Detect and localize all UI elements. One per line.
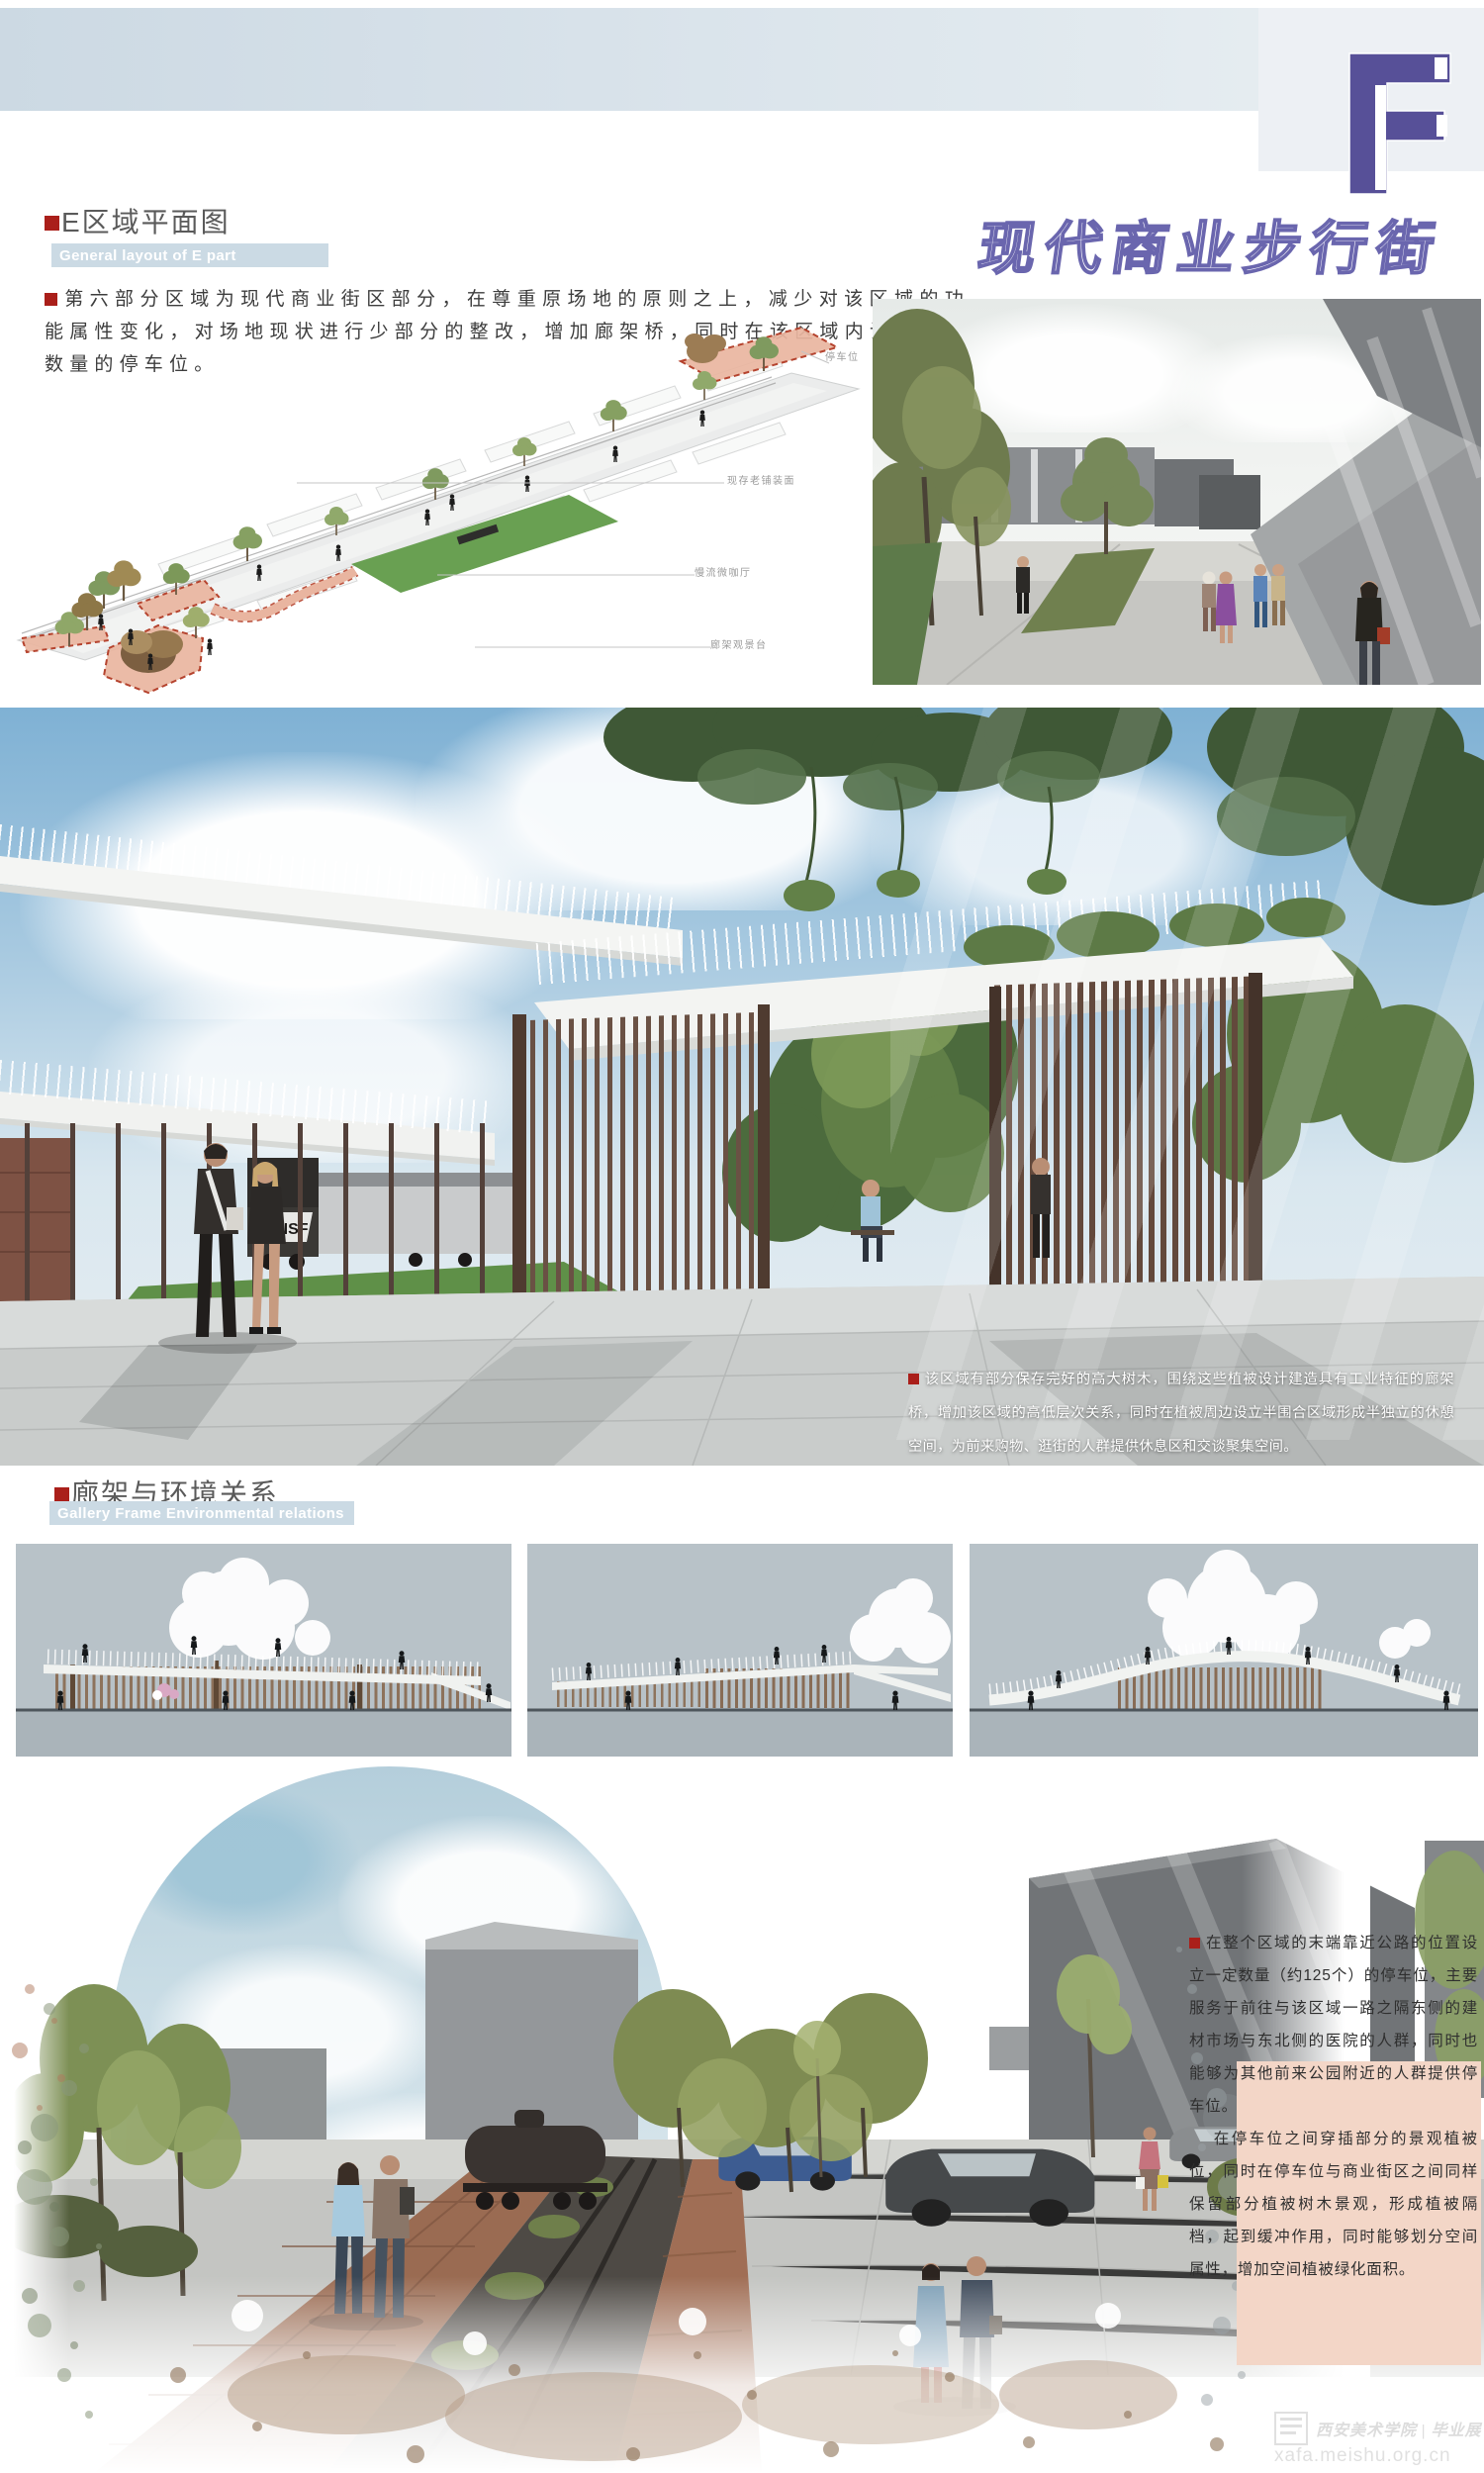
render-caption: 该区域有部分保存完好的高大树木，围绕这些植被设计建造具有工业特征的廊架桥，增加该… [908,1363,1454,1464]
alley-render-photo [873,299,1481,685]
red-square-bullet [1189,1938,1200,1949]
elevation-panel-3 [970,1544,1478,1757]
plan-label-platform: 廊架观景台 [710,636,768,651]
plan-label-parking: 停车位 [825,348,860,363]
plate-letter-f [1342,51,1458,198]
watermark-url: xafa.meishu.org.cn [1274,2445,1482,2467]
section-e-subtitle: General layout of E part [51,243,328,267]
plan-label-cafe: 慢流微咖厅 [695,564,752,579]
red-square-bullet [54,1487,69,1502]
elevation-panel-1 [16,1544,511,1757]
gallery-bridge-render: BNSF [0,708,1484,1466]
presentation-board: 现代商业步行街 E区域平面图 General layout of E part … [0,0,1484,2473]
section-gallery-subtitle: Gallery Frame Environmental relations [49,1501,354,1525]
watermark: 西安美术学院 | 毕业展 xafa.meishu.org.cn [1274,2412,1482,2467]
elevation-panel-2 [527,1544,953,1757]
section-e-title-row: E区域平面图 [45,201,231,240]
plan-label-paving: 现存老铺装面 [727,472,795,487]
red-square-bullet [45,216,59,231]
watermark-logo-icon [1274,2412,1308,2445]
red-square-bullet [45,293,57,306]
page-title: 现代商业步行街 [974,202,1449,285]
section-e-title: E区域平面图 [61,207,231,238]
watermark-academy: 西安美术学院 | 毕业展 [1316,2417,1482,2440]
red-square-bullet [908,1374,919,1384]
parking-description: 在整个区域的末端靠近公路的位置设立一定数量（约125个）的停车位，主要服务于前往… [1189,1927,1478,2286]
